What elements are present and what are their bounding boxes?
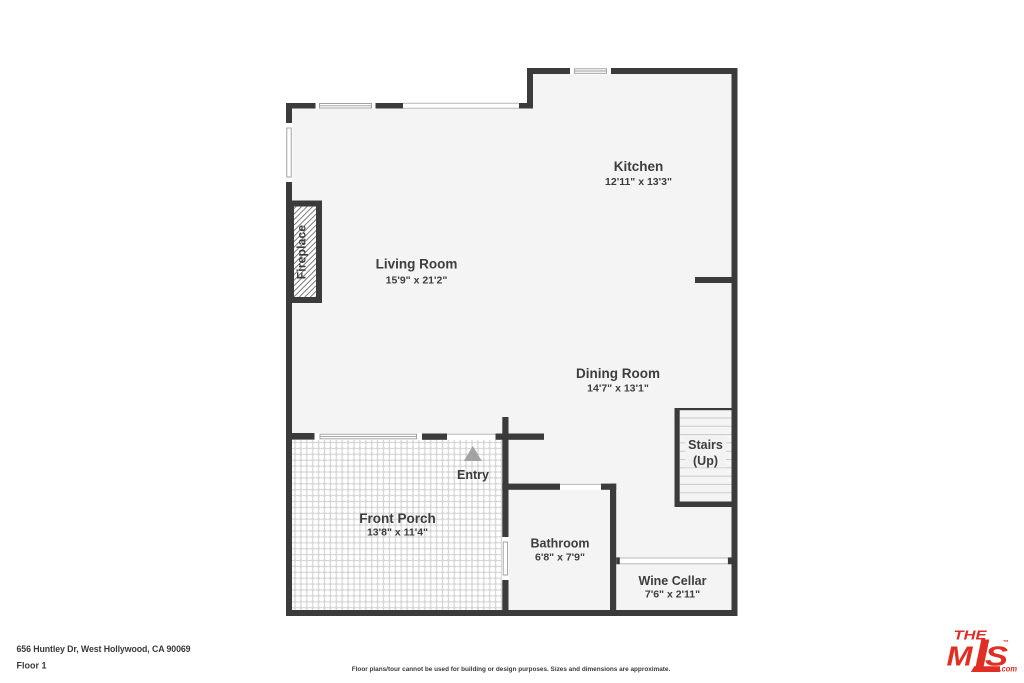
svg-text:6'8" x 7'9": 6'8" x 7'9"	[535, 552, 585, 564]
svg-text:M: M	[947, 641, 974, 672]
svg-text:Floor 1: Floor 1	[17, 661, 47, 671]
svg-text:15'9" x 21'2": 15'9" x 21'2"	[386, 275, 448, 287]
svg-text:Front Porch: Front Porch	[359, 511, 436, 526]
svg-text:Kitchen: Kitchen	[614, 159, 664, 174]
svg-text:(Up): (Up)	[693, 454, 718, 468]
svg-text:Living Room: Living Room	[376, 257, 458, 272]
svg-text:Fireplace: Fireplace	[295, 225, 309, 280]
svg-text:12'11" x 13'3": 12'11" x 13'3"	[605, 176, 672, 188]
svg-text:™: ™	[1003, 639, 1009, 646]
svg-text:656 Huntley Dr, West Hollywood: 656 Huntley Dr, West Hollywood, CA 90069	[17, 644, 191, 654]
svg-text:Bathroom: Bathroom	[530, 537, 589, 551]
svg-text:Stairs: Stairs	[688, 438, 723, 452]
svg-text:Dining Room: Dining Room	[576, 366, 660, 381]
svg-text:Wine Cellar: Wine Cellar	[639, 574, 707, 588]
svg-text:7'6" x 2'11": 7'6" x 2'11"	[645, 589, 700, 601]
svg-text:14'7" x 13'1": 14'7" x 13'1"	[587, 383, 649, 395]
svg-text:Entry: Entry	[457, 468, 489, 482]
svg-text:13'8" x 11'4": 13'8" x 11'4"	[367, 527, 428, 539]
svg-text:.com: .com	[1000, 664, 1018, 674]
svg-text:Floor plans/tour cannot be use: Floor plans/tour cannot be used for buil…	[352, 666, 671, 673]
